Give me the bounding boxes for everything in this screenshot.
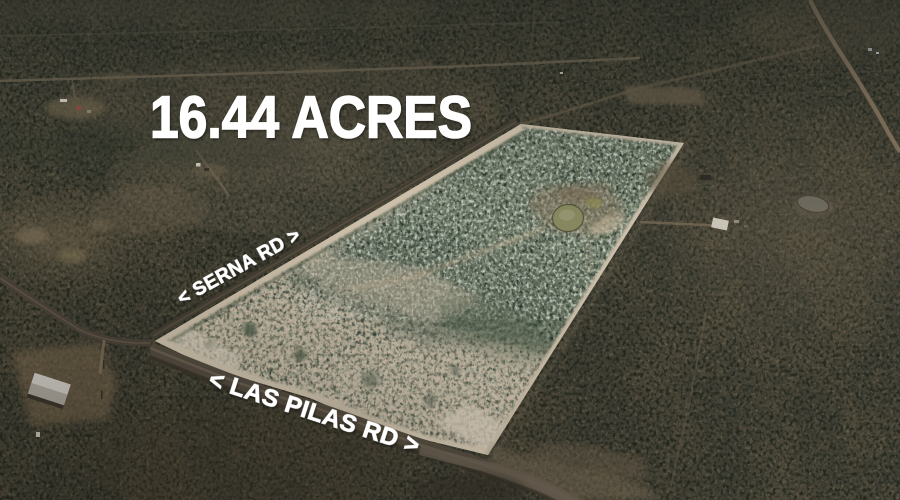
- svg-text:16.44 ACRES: 16.44 ACRES: [150, 85, 472, 151]
